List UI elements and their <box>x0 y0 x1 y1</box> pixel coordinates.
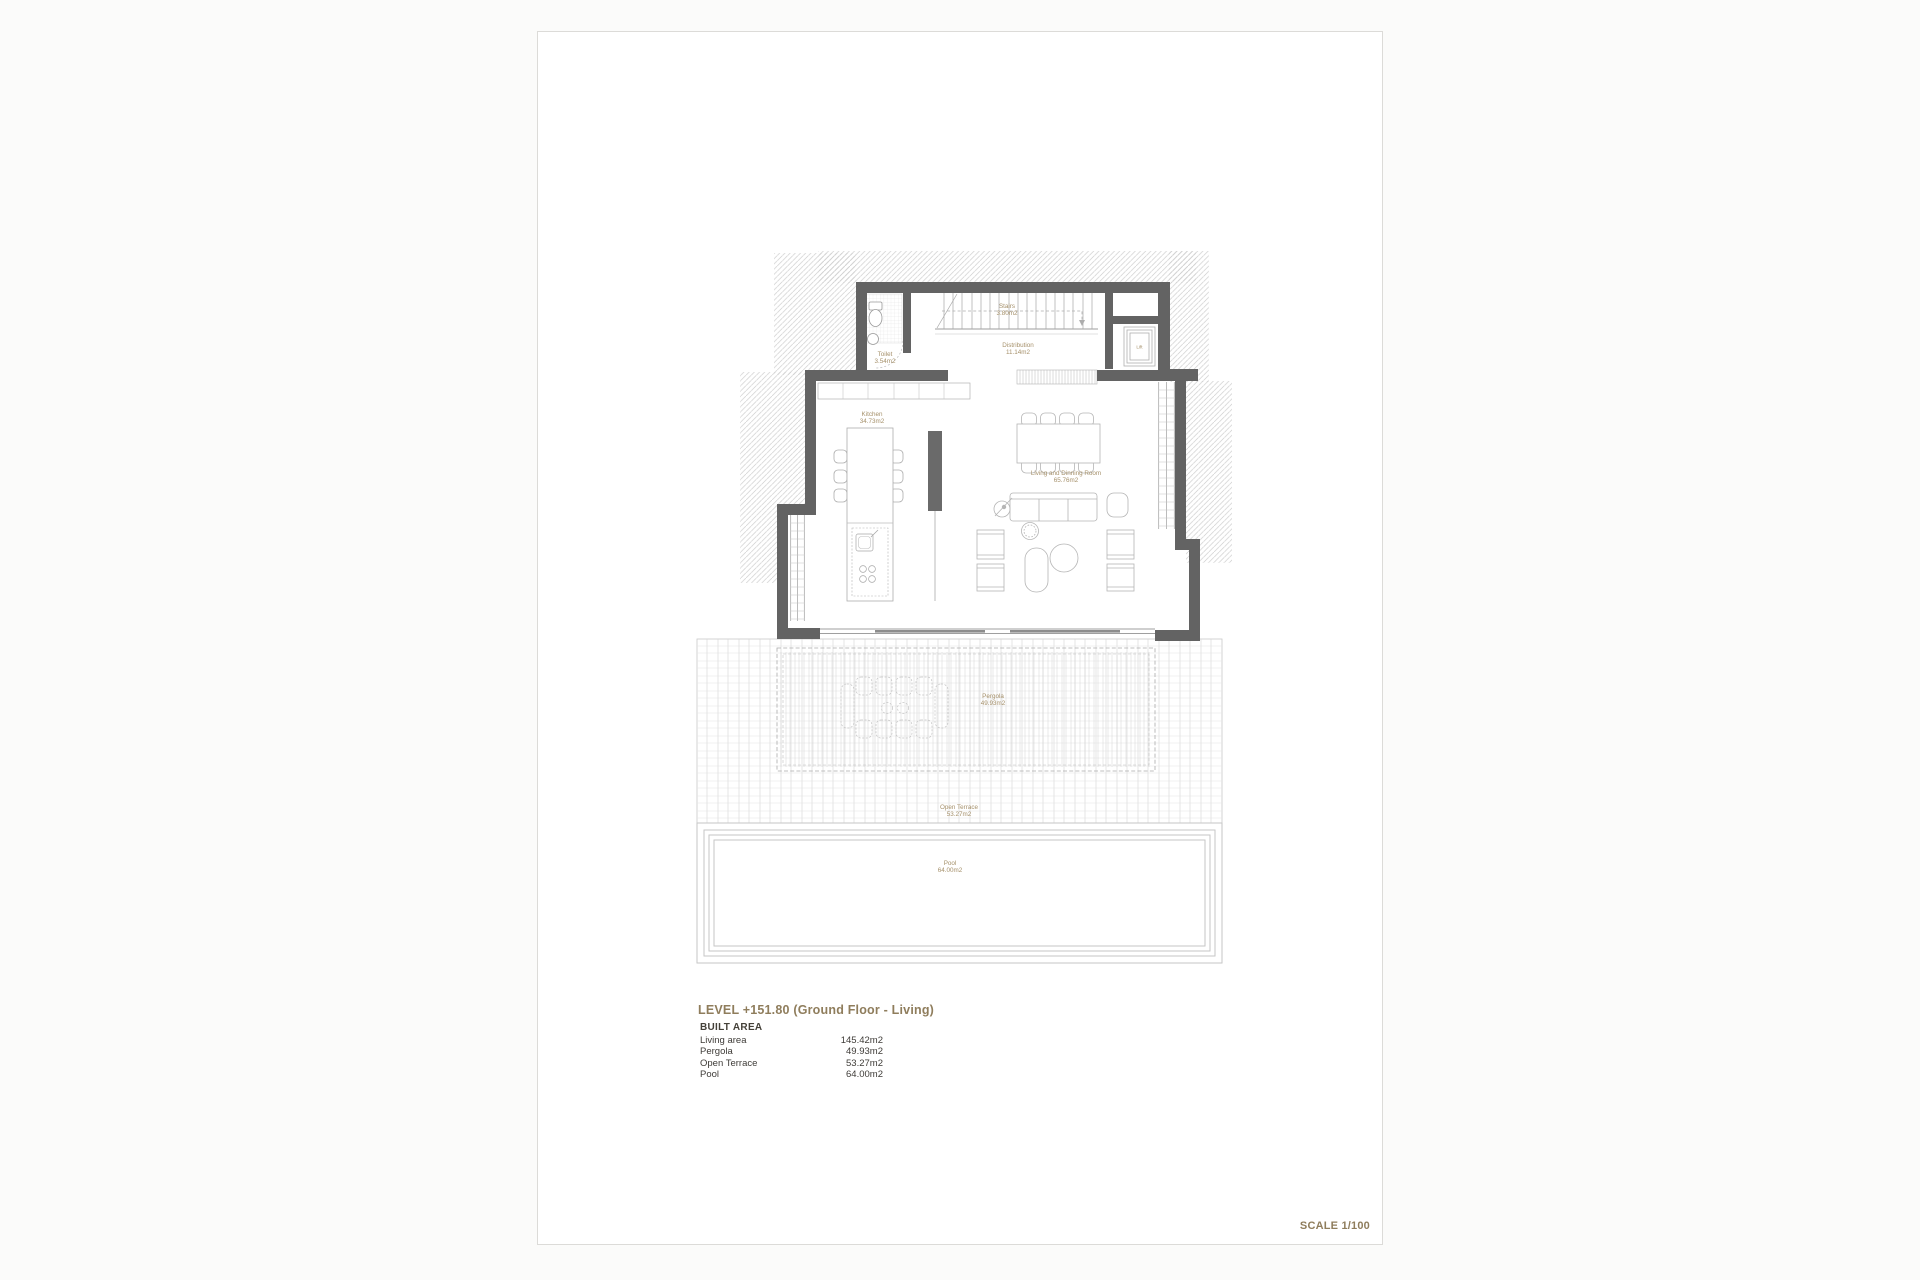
built-area-row: Open Terrace 53.27m2 <box>700 1058 883 1069</box>
scale-label: SCALE 1/100 <box>1300 1220 1370 1232</box>
row-label: Pergola <box>700 1046 733 1057</box>
kitchen-island <box>834 428 903 601</box>
row-label: Living area <box>700 1035 746 1046</box>
row-value: 64.00m2 <box>846 1069 883 1080</box>
washbasin <box>868 334 879 345</box>
wc-tank <box>869 302 882 310</box>
living-label: Living and Dinning Room <box>1031 470 1101 477</box>
sofa <box>1010 493 1097 521</box>
pool <box>697 823 1222 963</box>
left-window <box>790 515 805 621</box>
lift-label: Lift <box>1136 345 1143 350</box>
right-window <box>1158 382 1175 529</box>
pergola-slats <box>781 652 1149 767</box>
built-area-table: Living area 145.42m2 Pergola 49.93m2 Ope… <box>700 1035 883 1081</box>
kitchen-area: 34.73m2 <box>860 418 885 425</box>
row-value: 53.27m2 <box>846 1058 883 1069</box>
lounge-set <box>977 493 1134 592</box>
floor-plan: Toilet 3.54m2 Stairs 3.80m2 Distribution… <box>538 32 1384 1246</box>
toilet-label: Toilet <box>878 351 893 358</box>
sheet-title: LEVEL +151.80 (Ground Floor - Living) <box>698 1003 934 1017</box>
row-value: 145.42m2 <box>841 1035 883 1046</box>
drawing-sheet: Toilet 3.54m2 Stairs 3.80m2 Distribution… <box>537 31 1383 1245</box>
stairs-area: 3.80m2 <box>996 310 1018 317</box>
terrace-deck <box>697 639 1222 823</box>
dining-set <box>1017 413 1100 473</box>
armchair <box>1107 493 1128 517</box>
built-area-heading: BUILT AREA <box>700 1022 762 1033</box>
row-label: Open Terrace <box>700 1058 757 1069</box>
distribution-label: Distribution <box>1002 342 1034 349</box>
entry-step-grille <box>1017 370 1097 384</box>
open-terrace-label: Open Terrace <box>940 804 979 811</box>
kitchen-label: Kitchen <box>861 411 883 418</box>
stairs-label: Stairs <box>999 303 1015 310</box>
round-chair <box>1050 544 1078 572</box>
pergola-area: 49.93m2 <box>981 700 1006 707</box>
toilet-area: 3.54m2 <box>874 358 896 365</box>
wc-bowl <box>869 310 882 327</box>
sliding-glass-doors <box>820 629 1155 634</box>
built-area-row: Pool 64.00m2 <box>700 1069 883 1080</box>
row-label: Pool <box>700 1069 719 1080</box>
pool-area: 64.00m2 <box>938 867 963 874</box>
pergola-label: Pergola <box>982 693 1004 700</box>
built-area-row: Living area 145.42m2 <box>700 1035 883 1046</box>
pool-label: Pool <box>944 860 957 867</box>
living-area: 65.76m2 <box>1054 477 1079 484</box>
fireplace-wall <box>928 431 942 511</box>
kitchen-counter <box>818 383 970 399</box>
distribution-area: 11.14m2 <box>1006 349 1031 356</box>
chaise <box>1025 548 1048 592</box>
built-area-row: Pergola 49.93m2 <box>700 1046 883 1057</box>
open-terrace-area: 53.27m2 <box>947 811 972 818</box>
row-value: 49.93m2 <box>846 1046 883 1057</box>
